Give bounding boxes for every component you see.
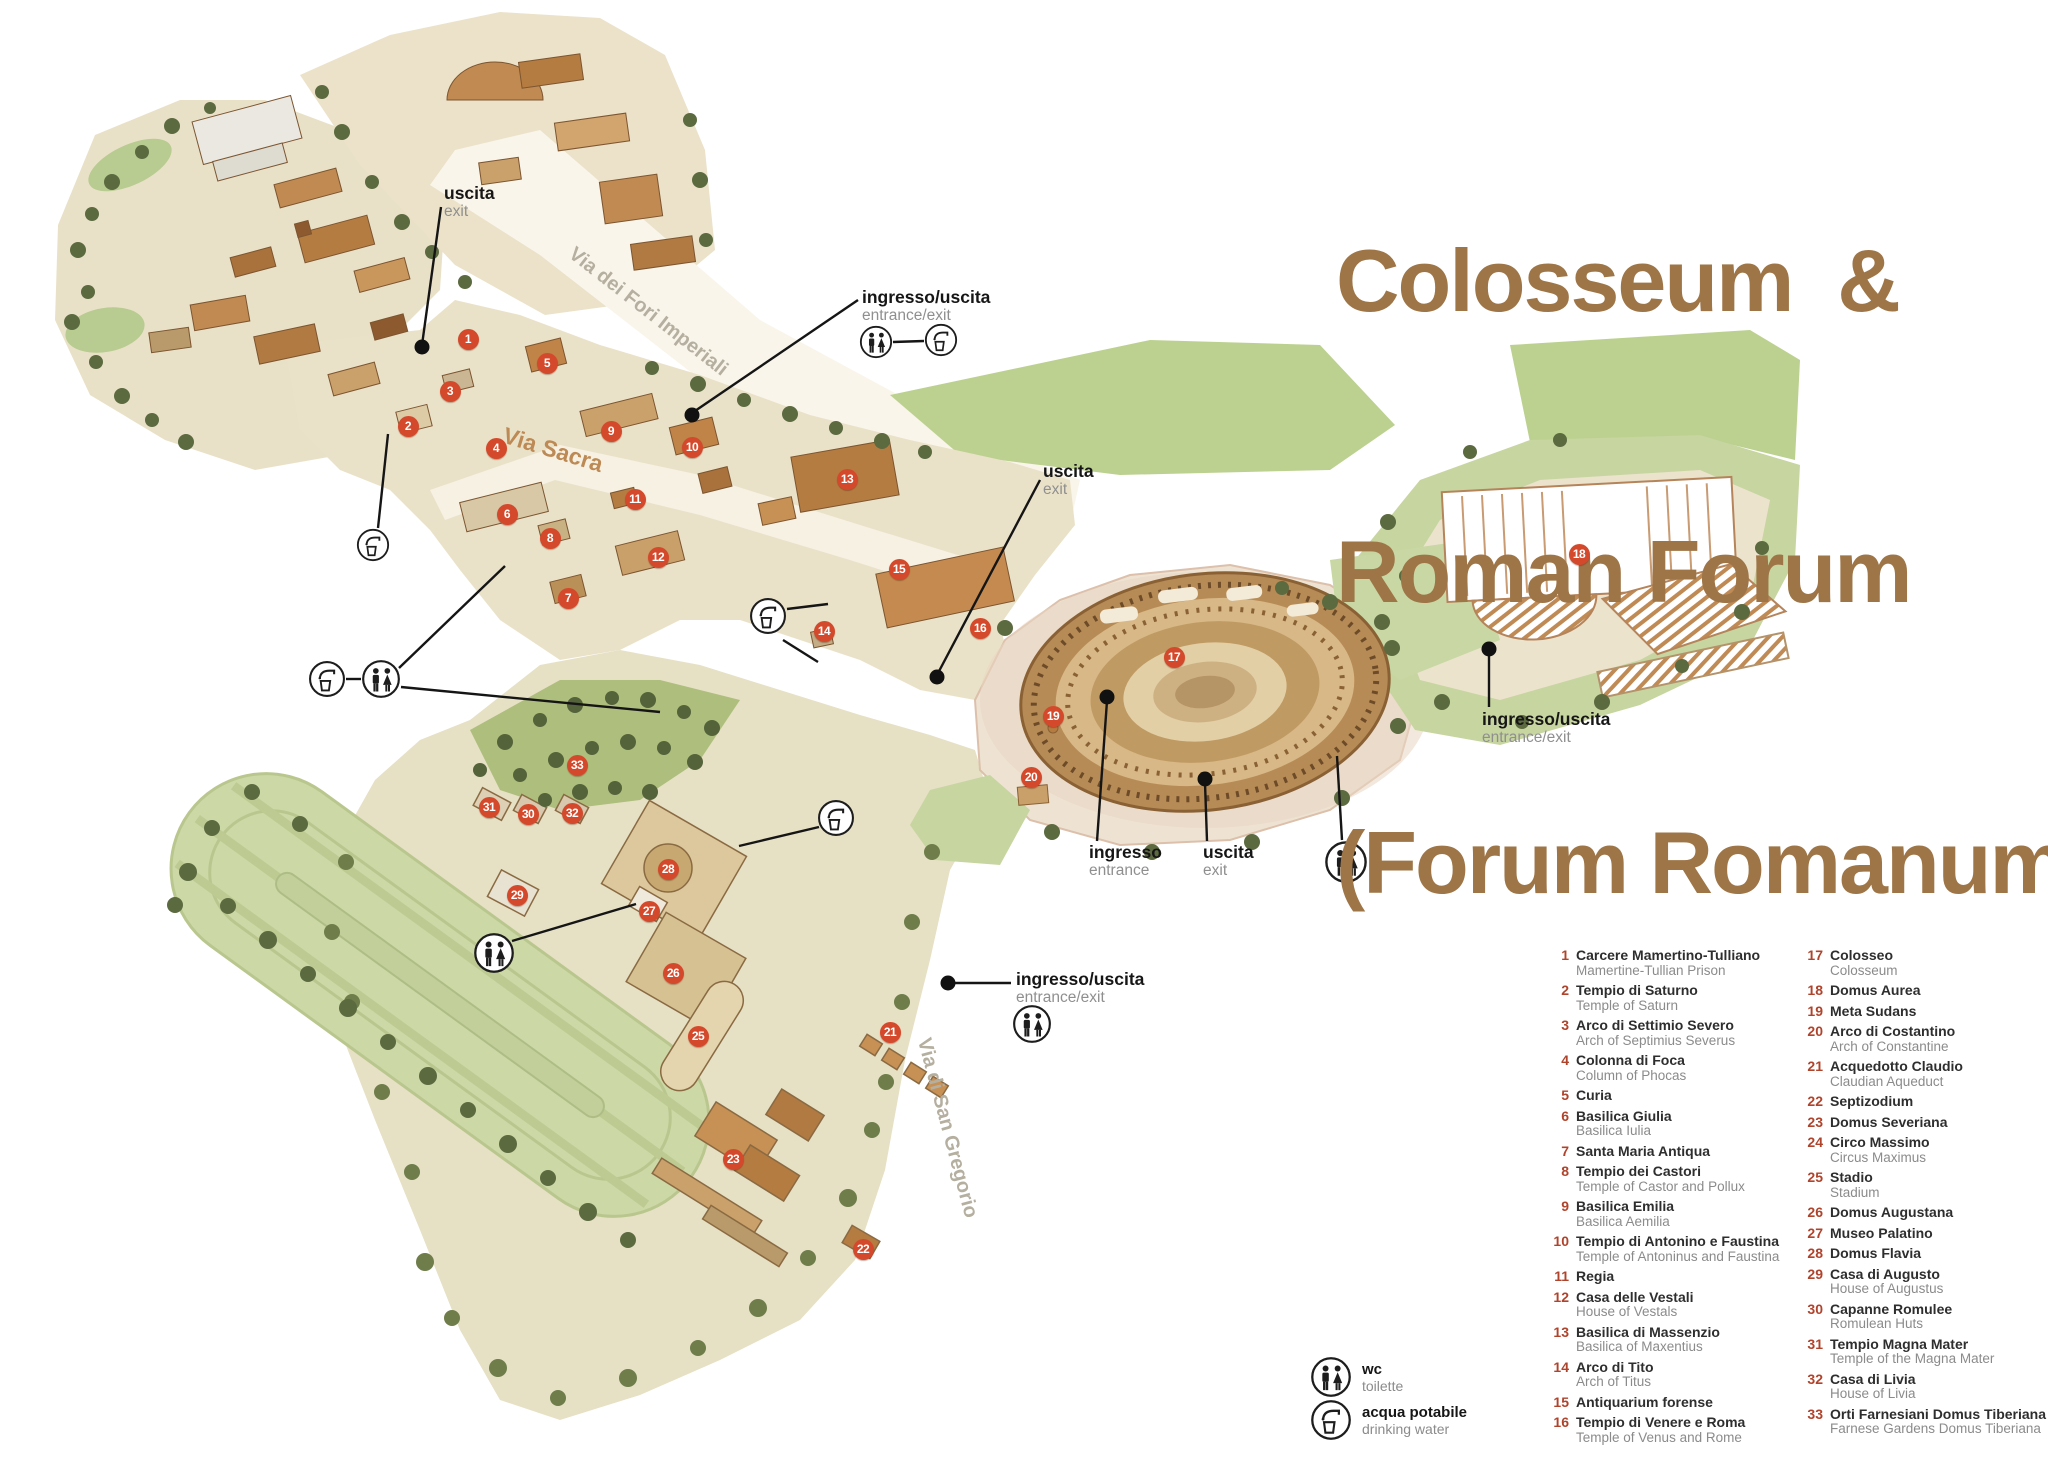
- map-marker-1: 1: [458, 329, 479, 350]
- legend-item-number: 8: [1549, 1164, 1576, 1194]
- legend-item-number: 32: [1803, 1372, 1830, 1402]
- legend-item-number: 19: [1803, 1004, 1830, 1020]
- title-line-1: Colosseum &: [1336, 232, 2036, 329]
- legend-item-name: Carcere Mamertino-Tulliano: [1576, 948, 1801, 964]
- annotation-sublabel: exit: [1043, 481, 1094, 499]
- map-marker-26: 26: [663, 963, 684, 984]
- legend-item-number: 15: [1549, 1395, 1576, 1411]
- map-title: Colosseum & Roman Forum (Forum Romanum): [1336, 38, 2036, 1105]
- map-marker-19: 19: [1043, 706, 1064, 727]
- legend-item-7: 7Santa Maria Antiqua: [1549, 1144, 1801, 1160]
- map-marker-3: 3: [440, 381, 461, 402]
- legend-item-subname: Temple of Castor and Pollux: [1576, 1180, 1801, 1195]
- map-marker-23: 23: [723, 1149, 744, 1170]
- legend-item-name: Museo Palatino: [1830, 1226, 2048, 1242]
- map-marker-7: 7: [558, 588, 579, 609]
- annotation-entrance-east: ingresso/uscitaentrance/exit: [1482, 710, 1610, 747]
- map-marker-8: 8: [540, 528, 561, 549]
- legend-item-subname: Basilica Aemilia: [1576, 1215, 1801, 1230]
- legend-item-number: 20: [1803, 1024, 1830, 1054]
- legend-item-subname: Column of Phocas: [1576, 1069, 1801, 1084]
- legend-item-number: 25: [1803, 1170, 1830, 1200]
- map-marker-2: 2: [398, 416, 419, 437]
- legend-item-3: 3Arco di Settimio SeveroArch of Septimiu…: [1549, 1018, 1801, 1048]
- legend-item-name: Tempio di Venere e Roma: [1576, 1415, 1801, 1431]
- legend-item-name: Septizodium: [1830, 1094, 2048, 1110]
- road-label-via-di-san-gregorio: Via di San Gregorio: [912, 1036, 982, 1221]
- map-marker-28: 28: [658, 859, 679, 880]
- legend-item-32: 32Casa di LiviaHouse of Livia: [1803, 1372, 2048, 1402]
- legend-item-subname: Circus Maximus: [1830, 1151, 2048, 1166]
- map-marker-11: 11: [625, 489, 646, 510]
- annotation-sublabel: exit: [444, 203, 495, 221]
- annotation-label: ingresso/uscita: [862, 288, 990, 307]
- legend-item-number: 11: [1549, 1269, 1576, 1285]
- legend-item-subname: House of Augustus: [1830, 1282, 2048, 1297]
- water-icon: [926, 325, 956, 355]
- legend-item-12: 12Casa delle VestaliHouse of Vestals: [1549, 1290, 1801, 1320]
- legend-item-name: Antiquarium forense: [1576, 1395, 1801, 1411]
- wc-icon: [1014, 1006, 1050, 1042]
- legend-item-6: 6Basilica GiuliaBasilica Iulia: [1549, 1109, 1801, 1139]
- legend-item-number: 27: [1803, 1226, 1830, 1242]
- map-marker-31: 31: [479, 797, 500, 818]
- legend-item-number: 28: [1803, 1246, 1830, 1262]
- legend-item-18: 18Domus Aurea: [1803, 983, 2048, 999]
- legend-item-name: Domus Augustana: [1830, 1205, 2048, 1221]
- legend-item-name: Tempio di Saturno: [1576, 983, 1801, 999]
- legend-item-23: 23Domus Severiana: [1803, 1115, 2048, 1131]
- legend-item-subname: Arch of Titus: [1576, 1375, 1801, 1390]
- legend-item-24: 24Circo MassimoCircus Maximus: [1803, 1135, 2048, 1165]
- legend-item-9: 9Basilica EmiliaBasilica Aemilia: [1549, 1199, 1801, 1229]
- legend-item-number: 10: [1549, 1234, 1576, 1264]
- legend-item-number: 7: [1549, 1144, 1576, 1160]
- legend-item-number: 24: [1803, 1135, 1830, 1165]
- legend-item-subname: Farnese Gardens Domus Tiberiana: [1830, 1422, 2048, 1437]
- symbols-legend-label: wc: [1362, 1361, 1403, 1378]
- legend-item-31: 31Tempio Magna MaterTemple of the Magna …: [1803, 1337, 2048, 1367]
- map-marker-21: 21: [880, 1022, 901, 1043]
- symbols-legend-sublabel: drinking water: [1362, 1421, 1467, 1437]
- legend-item-5: 5Curia: [1549, 1088, 1801, 1104]
- map-marker-29: 29: [507, 885, 528, 906]
- legend-item-name: Arco di Settimio Severo: [1576, 1018, 1801, 1034]
- legend-item-subname: Basilica of Maxentius: [1576, 1340, 1801, 1355]
- legend-item-number: 26: [1803, 1205, 1830, 1221]
- map-marker-6: 6: [497, 504, 518, 525]
- legend-item-8: 8Tempio dei CastoriTemple of Castor and …: [1549, 1164, 1801, 1194]
- legend-item-26: 26Domus Augustana: [1803, 1205, 2048, 1221]
- legend-item-number: 22: [1803, 1094, 1830, 1110]
- map-marker-27: 27: [639, 901, 660, 922]
- legend-item-number: 30: [1803, 1302, 1830, 1332]
- legend-item-name: Colosseo: [1830, 948, 2048, 964]
- annotation-label: uscita: [444, 184, 495, 203]
- water-icon: [358, 530, 388, 560]
- map-marker-18: 18: [1569, 544, 1590, 565]
- legend-item-subname: Stadium: [1830, 1186, 2048, 1201]
- title-line-3: (Forum Romanum): [1336, 814, 2036, 911]
- legend-item-number: 9: [1549, 1199, 1576, 1229]
- symbols-legend-label: acqua potabile: [1362, 1404, 1467, 1421]
- legend-item-subname: Romulean Huts: [1830, 1317, 2048, 1332]
- legend-item-name: Casa di Augusto: [1830, 1267, 2048, 1283]
- wc-icon: [861, 327, 891, 357]
- legend-item-11: 11Regia: [1549, 1269, 1801, 1285]
- map-marker-33: 33: [567, 755, 588, 776]
- legend-column-2: 17ColosseoColosseum18Domus Aurea19Meta S…: [1803, 948, 2048, 1442]
- legend-item-number: 23: [1803, 1115, 1830, 1131]
- legend-item-name: Tempio di Antonino e Faustina: [1576, 1234, 1801, 1250]
- legend-item-number: 18: [1803, 983, 1830, 999]
- legend-item-name: Capanne Romulee: [1830, 1302, 2048, 1318]
- legend-item-number: 16: [1549, 1415, 1576, 1445]
- legend-item-29: 29Casa di AugustoHouse of Augustus: [1803, 1267, 2048, 1297]
- map-marker-9: 9: [601, 421, 622, 442]
- legend-item-25: 25StadioStadium: [1803, 1170, 2048, 1200]
- annotation-colosseum-entrance: ingressoentrance: [1089, 843, 1162, 880]
- map-marker-5: 5: [537, 353, 558, 374]
- annotation-entrance-south: ingresso/uscitaentrance/exit: [1016, 970, 1144, 1007]
- symbols-legend-sublabel: toilette: [1362, 1378, 1403, 1394]
- wc-icon: [1310, 1356, 1352, 1398]
- legend-item-name: Regia: [1576, 1269, 1801, 1285]
- legend-item-subname: Temple of Antoninus and Faustina: [1576, 1250, 1801, 1265]
- map-marker-25: 25: [688, 1026, 709, 1047]
- legend-item-subname: Arch of Constantine: [1830, 1040, 2048, 1055]
- map-marker-22: 22: [853, 1239, 874, 1260]
- legend-item-19: 19Meta Sudans: [1803, 1004, 2048, 1020]
- legend-item-20: 20Arco di CostantinoArch of Constantine: [1803, 1024, 2048, 1054]
- annotation-label: uscita: [1203, 843, 1254, 862]
- annotation-exit-northwest: uscitaexit: [444, 184, 495, 221]
- legend-item-subname: House of Vestals: [1576, 1305, 1801, 1320]
- legend-item-name: Domus Severiana: [1830, 1115, 2048, 1131]
- legend-item-28: 28Domus Flavia: [1803, 1246, 2048, 1262]
- map-canvas: Colosseum & Roman Forum (Forum Romanum) …: [0, 0, 2048, 1472]
- legend-item-name: Curia: [1576, 1088, 1801, 1104]
- legend-item-number: 21: [1803, 1059, 1830, 1089]
- legend-item-subname: Arch of Septimius Severus: [1576, 1034, 1801, 1049]
- legend-item-name: Tempio dei Castori: [1576, 1164, 1801, 1180]
- legend-item-subname: Claudian Aqueduct: [1830, 1075, 2048, 1090]
- annotation-entrance-north: ingresso/uscitaentrance/exit: [862, 288, 990, 325]
- legend-item-name: Acquedotto Claudio: [1830, 1059, 2048, 1075]
- road-label-via-dei-fori-imperiali: Via dei Fori Imperiali: [564, 243, 732, 381]
- legend-item-number: 29: [1803, 1267, 1830, 1297]
- legend-item-13: 13Basilica di MassenzioBasilica of Maxen…: [1549, 1325, 1801, 1355]
- legend-column-1: 1Carcere Mamertino-TullianoMamertine-Tul…: [1549, 948, 1801, 1450]
- legend-item-14: 14Arco di TitoArch of Titus: [1549, 1360, 1801, 1390]
- legend-item-number: 2: [1549, 983, 1576, 1013]
- legend-item-name: Basilica Emilia: [1576, 1199, 1801, 1215]
- legend-item-2: 2Tempio di SaturnoTemple of Saturn: [1549, 983, 1801, 1013]
- legend-item-number: 33: [1803, 1407, 1830, 1437]
- annotation-sublabel: entrance/exit: [1482, 729, 1610, 747]
- legend-item-name: Stadio: [1830, 1170, 2048, 1186]
- annotation-colosseum-exit: uscitaexit: [1203, 843, 1254, 880]
- legend-item-name: Santa Maria Antiqua: [1576, 1144, 1801, 1160]
- legend-item-number: 12: [1549, 1290, 1576, 1320]
- legend-item-number: 17: [1803, 948, 1830, 978]
- map-marker-15: 15: [889, 559, 910, 580]
- legend-item-name: Orti Farnesiani Domus Tiberiana: [1830, 1407, 2048, 1423]
- legend-item-16: 16Tempio di Venere e RomaTemple of Venus…: [1549, 1415, 1801, 1445]
- legend-item-subname: Temple of Venus and Rome: [1576, 1431, 1801, 1446]
- legend-item-name: Arco di Costantino: [1830, 1024, 2048, 1040]
- legend-item-number: 14: [1549, 1360, 1576, 1390]
- annotation-label: ingresso/uscita: [1016, 970, 1144, 989]
- wc-icon: [363, 661, 399, 697]
- legend-item-22: 22Septizodium: [1803, 1094, 2048, 1110]
- legend-item-subname: Temple of Saturn: [1576, 999, 1801, 1014]
- annotation-sublabel: entrance: [1089, 862, 1162, 880]
- legend-item-4: 4Colonna di FocaColumn of Phocas: [1549, 1053, 1801, 1083]
- map-marker-30: 30: [518, 804, 539, 825]
- map-marker-20: 20: [1021, 767, 1042, 788]
- legend-item-27: 27Museo Palatino: [1803, 1226, 2048, 1242]
- legend-item-1: 1Carcere Mamertino-TullianoMamertine-Tul…: [1549, 948, 1801, 978]
- legend-item-name: Casa delle Vestali: [1576, 1290, 1801, 1306]
- legend-item-name: Colonna di Foca: [1576, 1053, 1801, 1069]
- legend-item-name: Circo Massimo: [1830, 1135, 2048, 1151]
- annotation-exit-northeast: uscitaexit: [1043, 462, 1094, 499]
- map-marker-12: 12: [648, 547, 669, 568]
- legend-item-21: 21Acquedotto ClaudioClaudian Aqueduct: [1803, 1059, 2048, 1089]
- legend-item-number: 1: [1549, 948, 1576, 978]
- water-icon: [310, 662, 344, 696]
- annotation-sublabel: entrance/exit: [1016, 989, 1144, 1007]
- legend-item-name: Tempio Magna Mater: [1830, 1337, 2048, 1353]
- map-marker-14: 14: [814, 621, 835, 642]
- symbols-legend-row-acqua-potabile: acqua potabiledrinking water: [1310, 1399, 1467, 1441]
- annotation-label: ingresso: [1089, 843, 1162, 862]
- map-marker-13: 13: [837, 469, 858, 490]
- legend-item-10: 10Tempio di Antonino e FaustinaTemple of…: [1549, 1234, 1801, 1264]
- map-marker-16: 16: [970, 618, 991, 639]
- legend-item-15: 15Antiquarium forense: [1549, 1395, 1801, 1411]
- legend-item-subname: Mamertine-Tullian Prison: [1576, 964, 1801, 979]
- symbols-legend-row-wc: wctoilette: [1310, 1356, 1403, 1398]
- legend-item-17: 17ColosseoColosseum: [1803, 948, 2048, 978]
- title-line-2: Roman Forum: [1336, 523, 2036, 620]
- legend-item-number: 4: [1549, 1053, 1576, 1083]
- legend-item-number: 13: [1549, 1325, 1576, 1355]
- annotation-label: ingresso/uscita: [1482, 710, 1610, 729]
- legend-item-subname: Basilica Iulia: [1576, 1124, 1801, 1139]
- legend-item-subname: House of Livia: [1830, 1387, 2048, 1402]
- water-icon: [819, 801, 853, 835]
- map-marker-17: 17: [1164, 647, 1185, 668]
- legend-item-name: Casa di Livia: [1830, 1372, 2048, 1388]
- annotation-sublabel: exit: [1203, 862, 1254, 880]
- water-icon: [1310, 1399, 1352, 1441]
- wc-icon: [475, 934, 512, 971]
- legend-item-33: 33Orti Farnesiani Domus TiberianaFarnese…: [1803, 1407, 2048, 1437]
- water-icon: [751, 599, 785, 633]
- legend-item-name: Arco di Tito: [1576, 1360, 1801, 1376]
- legend-item-name: Meta Sudans: [1830, 1004, 2048, 1020]
- legend-item-name: Basilica di Massenzio: [1576, 1325, 1801, 1341]
- map-marker-32: 32: [562, 803, 583, 824]
- annotation-label: uscita: [1043, 462, 1094, 481]
- legend-item-number: 6: [1549, 1109, 1576, 1139]
- legend-item-number: 3: [1549, 1018, 1576, 1048]
- legend-item-name: Domus Flavia: [1830, 1246, 2048, 1262]
- map-marker-10: 10: [682, 437, 703, 458]
- legend-item-number: 31: [1803, 1337, 1830, 1367]
- legend-item-name: Domus Aurea: [1830, 983, 2048, 999]
- legend-item-30: 30Capanne RomuleeRomulean Huts: [1803, 1302, 2048, 1332]
- legend-item-number: 5: [1549, 1088, 1576, 1104]
- legend-item-name: Basilica Giulia: [1576, 1109, 1801, 1125]
- legend-item-subname: Colosseum: [1830, 964, 2048, 979]
- annotation-sublabel: entrance/exit: [862, 307, 990, 325]
- legend-item-subname: Temple of the Magna Mater: [1830, 1352, 2048, 1367]
- road-label-via-sacra: Via Sacra: [500, 422, 607, 478]
